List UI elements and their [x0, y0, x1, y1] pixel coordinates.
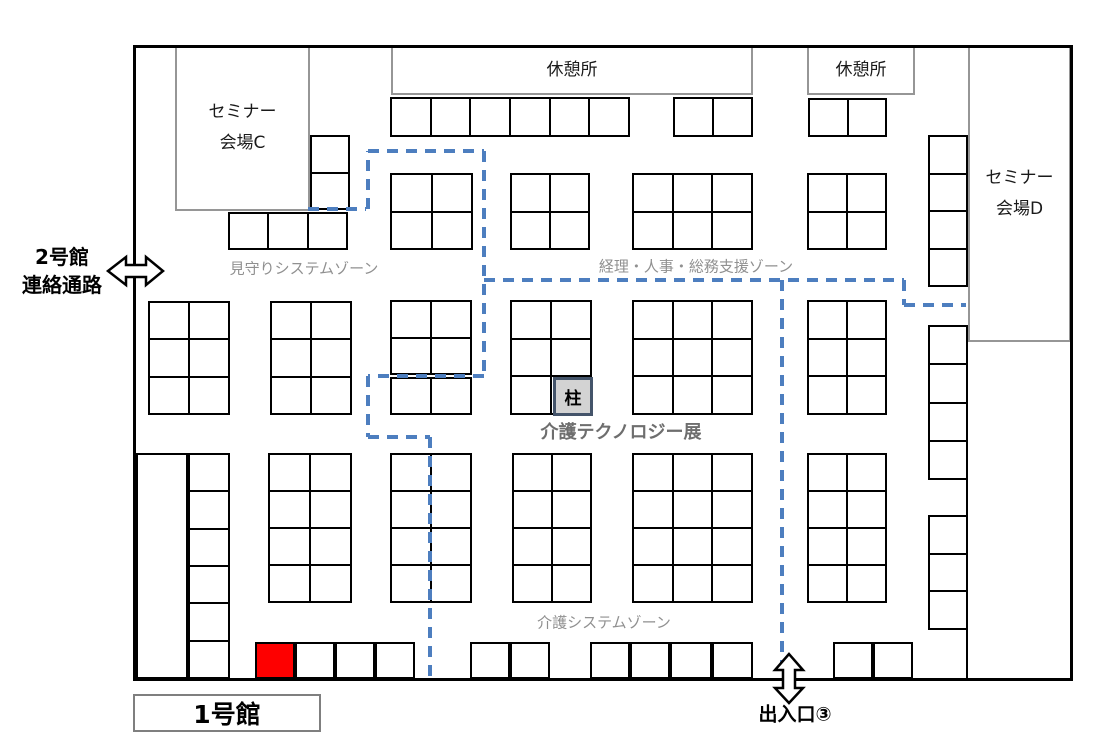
booth-cell — [392, 529, 430, 564]
booth-cell — [551, 213, 588, 249]
booth-cell — [634, 302, 672, 338]
booth-block — [390, 97, 630, 137]
booth-cell — [150, 303, 188, 338]
booth-block — [390, 453, 472, 603]
booth-cell — [312, 137, 348, 172]
booth-cell — [269, 214, 306, 248]
booth-block — [295, 642, 335, 679]
booth-cell — [634, 175, 672, 211]
booth-cell — [297, 644, 333, 677]
booth-cell — [432, 379, 470, 413]
booth-cell — [674, 492, 712, 527]
booth-cell — [272, 340, 310, 375]
booth-cell — [150, 378, 188, 413]
booth-cell — [553, 566, 590, 601]
booth-cell — [392, 302, 430, 337]
rest-area-right-label: 休憩所 — [836, 55, 887, 86]
booth-cell — [930, 212, 966, 248]
booth-cell — [634, 340, 672, 376]
booth-cell — [190, 604, 228, 639]
booth-cell — [713, 566, 751, 601]
booth-cell — [551, 99, 589, 135]
booth-cell — [590, 99, 628, 135]
booth-cell — [930, 250, 966, 286]
booth-cell — [809, 340, 846, 376]
booth-cell — [309, 214, 346, 248]
booth-cell — [553, 492, 590, 527]
booth-cell — [138, 455, 186, 677]
highlighted-booth — [255, 642, 295, 679]
right-area-divider-line — [966, 325, 968, 679]
hall-wall-top — [133, 45, 1073, 48]
booth-cell — [848, 175, 885, 211]
booth-cell — [512, 302, 550, 338]
booth-block — [390, 173, 473, 250]
booth-cell — [553, 455, 590, 490]
booth-cell — [270, 529, 309, 564]
booth-cell — [190, 642, 228, 677]
booth-cell — [930, 555, 966, 591]
booth-cell — [634, 455, 672, 490]
booth-cell — [930, 365, 966, 401]
booth-cell — [848, 302, 885, 338]
booth-cell — [848, 213, 885, 249]
booth-cell — [713, 492, 751, 527]
booth-cell — [875, 644, 911, 677]
booth-cell — [312, 303, 350, 338]
booth-block — [390, 377, 472, 415]
exit-3-label: 出入口③ — [758, 700, 831, 727]
booth-cell — [674, 302, 712, 338]
booth-block — [928, 515, 968, 630]
booth-cell — [809, 492, 846, 527]
zone-label-care-systems: 介護システムゾーン — [537, 612, 671, 633]
booth-cell — [675, 99, 712, 135]
booth-cell — [190, 303, 228, 338]
booth-cell — [392, 99, 430, 135]
booth-cell — [809, 566, 846, 601]
building2-passage-label: 2号館 連絡通路 — [6, 243, 118, 299]
booth-cell — [553, 529, 590, 564]
booth-cell — [432, 455, 470, 490]
booth-cell — [930, 404, 966, 440]
hall-wall-bottom — [133, 678, 1073, 681]
booth-cell — [848, 340, 885, 376]
booth-cell — [809, 377, 846, 413]
booth-cell — [634, 213, 672, 249]
booth-cell — [392, 339, 430, 374]
booth-cell — [512, 213, 549, 249]
booth-cell — [514, 492, 551, 527]
booth-cell — [311, 529, 350, 564]
booth-block — [590, 642, 630, 679]
booth-cell — [713, 340, 751, 376]
pillar-label: 柱 — [565, 384, 582, 409]
booth-cell — [190, 567, 228, 602]
booth-block — [270, 301, 352, 415]
booth-cell — [190, 340, 228, 375]
booth-cell — [392, 175, 431, 211]
booth-cell — [392, 379, 430, 413]
booth-block — [807, 300, 887, 415]
booth-cell — [713, 175, 751, 211]
booth-block — [670, 642, 712, 679]
booth-cell — [512, 377, 550, 413]
booth-cell — [674, 455, 712, 490]
booth-block — [928, 135, 968, 287]
booth-cell — [848, 377, 885, 413]
booth-block — [148, 301, 230, 415]
booth-cell — [713, 455, 751, 490]
booth-block — [512, 453, 592, 603]
booth-cell — [674, 340, 712, 376]
booth-block — [632, 300, 753, 415]
exhibition-title: 介護テクノロジー展 — [541, 418, 702, 444]
booth-cell — [392, 455, 430, 490]
booth-cell — [392, 492, 430, 527]
booth-block — [632, 173, 753, 250]
booth-cell — [150, 340, 188, 375]
booth-cell — [930, 517, 966, 553]
booth-block — [335, 642, 375, 679]
booth-cell — [634, 492, 672, 527]
booth-cell — [472, 644, 508, 677]
rest-area-right: 休憩所 — [807, 45, 915, 95]
booth-cell — [190, 455, 228, 490]
booth-block — [268, 453, 352, 603]
hall-wall-right — [1070, 45, 1073, 681]
booth-cell — [809, 302, 846, 338]
booth-cell — [634, 377, 672, 413]
booth-cell — [190, 530, 228, 565]
booth-block — [873, 642, 913, 679]
rest-area-left-label: 休憩所 — [547, 55, 598, 86]
booth-cell — [270, 455, 309, 490]
booth-cell — [432, 566, 470, 601]
booth-cell — [552, 302, 590, 338]
booth-cell — [674, 175, 712, 211]
booth-cell — [592, 644, 628, 677]
rest-area-left: 休憩所 — [391, 45, 753, 95]
booth-cell — [312, 174, 348, 209]
building2-passage-label-line2: 連絡通路 — [6, 271, 118, 299]
booth-cell — [337, 644, 373, 677]
floor-plan: セミナー 会場C 休憩所 休憩所 セミナー 会場D 柱 見守りシステムゾーン 経… — [0, 0, 1098, 745]
booth-cell — [311, 455, 350, 490]
booth-block — [632, 453, 753, 603]
booth-block — [807, 453, 887, 603]
booth-block — [630, 642, 670, 679]
booth-cell — [809, 213, 846, 249]
booth-cell — [848, 492, 885, 527]
seminar-room-c-label-line2: 会場C — [220, 128, 266, 159]
booth-cell — [674, 529, 712, 564]
booth-cell — [512, 175, 549, 211]
seminar-room-d-label-line1: セミナー — [986, 163, 1054, 194]
booth-cell — [713, 377, 751, 413]
booth-cell — [190, 378, 228, 413]
booth-cell — [432, 302, 470, 337]
booth-cell — [930, 327, 966, 363]
booth-block — [188, 453, 230, 679]
hall-wall-left — [133, 45, 136, 681]
booth-cell — [432, 339, 470, 374]
zone-label-admin-support: 経理・人事・総務支援ゾーン — [599, 256, 793, 277]
building2-passage-label-line1: 2号館 — [6, 243, 118, 271]
booth-cell — [432, 99, 470, 135]
booth-cell — [634, 529, 672, 564]
booth-cell — [713, 213, 751, 249]
booth-block — [390, 300, 472, 375]
booth-block — [807, 173, 887, 250]
booth-cell — [511, 99, 549, 135]
booth-block — [228, 212, 348, 250]
pillar-marker: 柱 — [553, 377, 593, 416]
booth-cell — [713, 529, 751, 564]
seminar-room-c: セミナー 会場C — [175, 45, 310, 211]
booth-cell — [514, 529, 551, 564]
booth-block — [712, 642, 753, 679]
booth-cell — [714, 644, 751, 677]
booth-block — [808, 98, 887, 137]
booth-cell — [514, 455, 551, 490]
building1-title-box: 1号館 — [133, 694, 321, 732]
booth-cell — [270, 566, 309, 601]
booth-cell — [930, 175, 966, 211]
booth-block — [510, 173, 590, 250]
booth-cell — [551, 175, 588, 211]
booth-block — [470, 642, 510, 679]
booth-block — [310, 135, 350, 210]
booth-cell — [552, 340, 590, 376]
booth-cell — [674, 213, 712, 249]
seminar-room-c-label-line1: セミナー — [209, 97, 277, 128]
seminar-room-d: セミナー 会場D — [968, 45, 1071, 342]
booth-cell — [272, 303, 310, 338]
booth-cell — [432, 492, 470, 527]
building1-title: 1号館 — [193, 695, 260, 731]
booth-cell — [848, 566, 885, 601]
booth-cell — [433, 213, 472, 249]
booth-cell — [835, 644, 871, 677]
booth-block — [928, 325, 968, 480]
booth-cell — [311, 492, 350, 527]
booth-cell — [848, 529, 885, 564]
booth-cell — [230, 214, 267, 248]
booth-cell — [713, 302, 751, 338]
booth-cell — [392, 213, 431, 249]
booth-cell — [632, 644, 668, 677]
booth-cell — [392, 566, 430, 601]
booth-block — [833, 642, 873, 679]
side-open-area — [136, 453, 188, 679]
booth-cell — [312, 378, 350, 413]
booth-cell — [471, 99, 509, 135]
booth-cell — [634, 566, 672, 601]
booth-cell — [930, 592, 966, 628]
booth-cell — [674, 377, 712, 413]
booth-cell — [270, 492, 309, 527]
booth-cell — [848, 455, 885, 490]
booth-cell — [714, 99, 751, 135]
seminar-room-d-label-line2: 会場D — [996, 194, 1043, 225]
booth-cell — [312, 340, 350, 375]
booth-cell — [930, 442, 966, 478]
booth-cell — [512, 644, 548, 677]
booth-block — [510, 642, 550, 679]
booth-cell — [849, 100, 886, 135]
booth-cell — [930, 137, 966, 173]
zone-label-monitoring-systems: 見守りシステムゾーン — [230, 258, 379, 279]
booth-block — [673, 97, 753, 137]
booth-cell — [672, 644, 710, 677]
booth-cell — [311, 566, 350, 601]
booth-cell — [810, 100, 847, 135]
booth-cell — [809, 455, 846, 490]
booth-block — [375, 642, 415, 679]
booth-cell — [809, 175, 846, 211]
booth-cell — [272, 378, 310, 413]
booth-cell — [377, 644, 413, 677]
booth-cell — [514, 566, 551, 601]
booth-cell — [190, 492, 228, 527]
highlighted-booth — [257, 644, 293, 677]
booth-cell — [432, 529, 470, 564]
booth-cell — [512, 340, 550, 376]
booth-cell — [433, 175, 472, 211]
booth-cell — [674, 566, 712, 601]
booth-cell — [809, 529, 846, 564]
